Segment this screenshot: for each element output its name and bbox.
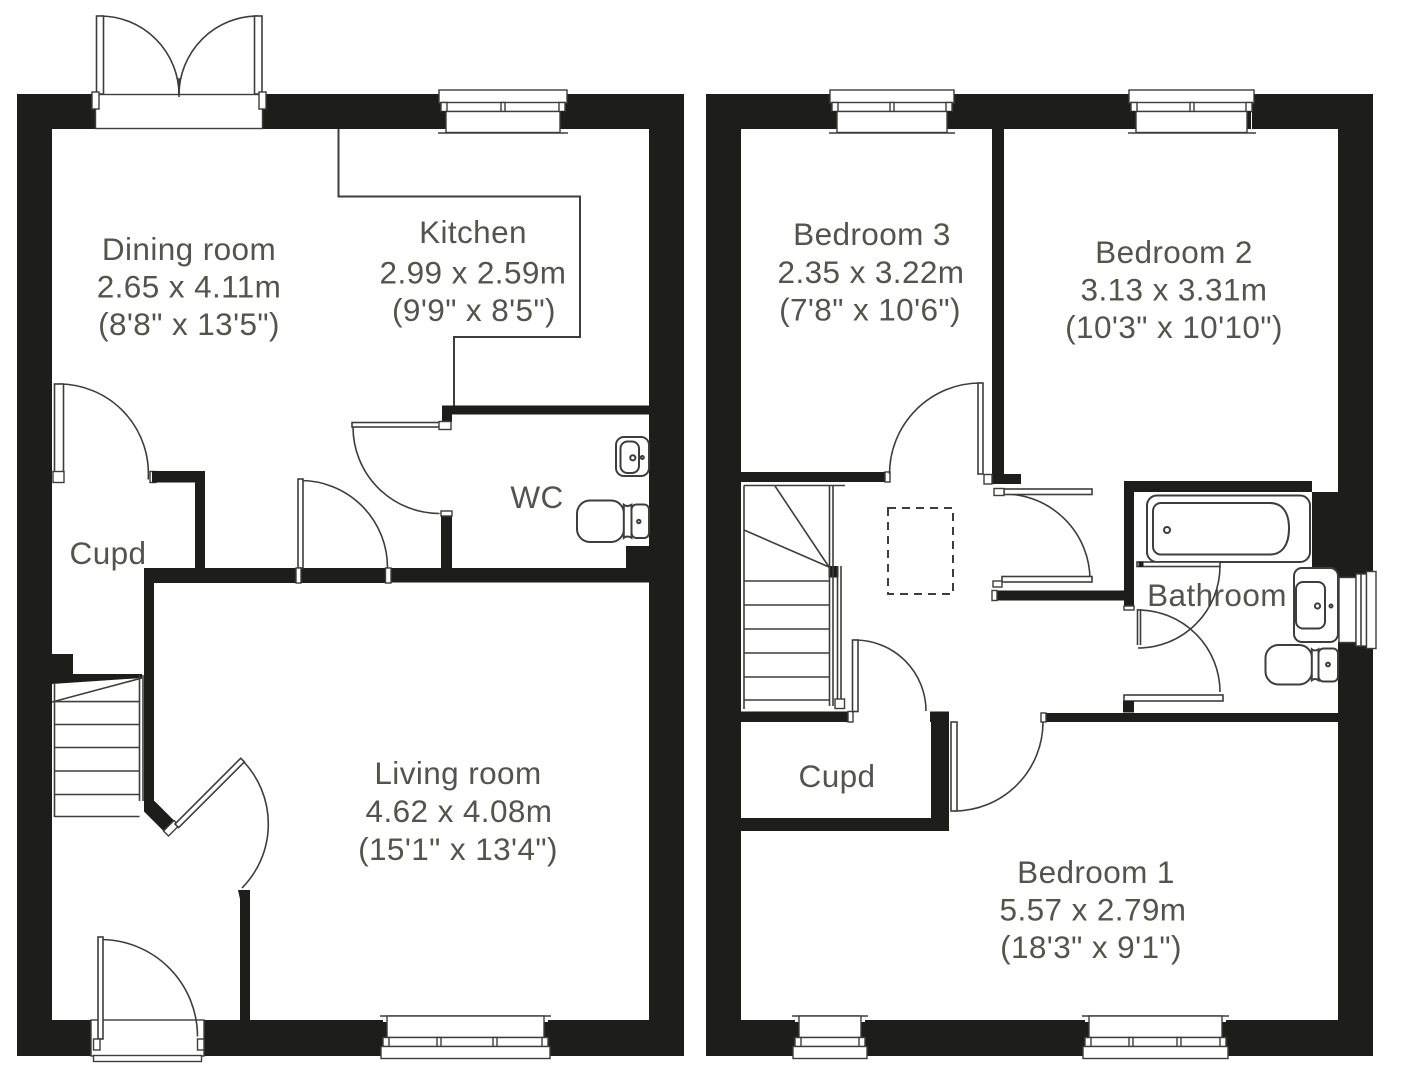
svg-text:2.99 x 2.59m: 2.99 x 2.59m: [380, 255, 567, 291]
svg-text:(7'8" x 10'6"): (7'8" x 10'6"): [779, 292, 961, 328]
svg-text:(15'1" x 13'4"): (15'1" x 13'4"): [358, 831, 558, 867]
svg-text:Cupd: Cupd: [799, 758, 876, 794]
svg-text:(8'8" x 13'5"): (8'8" x 13'5"): [98, 306, 280, 342]
svg-text:Dining room: Dining room: [102, 231, 276, 267]
svg-text:Bedroom 2: Bedroom 2: [1095, 234, 1253, 270]
svg-text:Bedroom 3: Bedroom 3: [793, 216, 951, 252]
svg-text:WC: WC: [510, 479, 563, 515]
svg-text:(18'3" x 9'1"): (18'3" x 9'1"): [1000, 929, 1182, 965]
svg-text:3.13 x 3.31m: 3.13 x 3.31m: [1081, 272, 1268, 308]
svg-text:Bedroom 1: Bedroom 1: [1017, 854, 1175, 890]
svg-text:(10'3" x 10'10"): (10'3" x 10'10"): [1065, 309, 1283, 345]
svg-text:5.57 x 2.79m: 5.57 x 2.79m: [1000, 892, 1187, 928]
svg-text:2.35 x 3.22m: 2.35 x 3.22m: [778, 254, 965, 290]
svg-text:2.65 x 4.11m: 2.65 x 4.11m: [97, 269, 282, 305]
svg-text:Bathroom: Bathroom: [1147, 577, 1287, 613]
svg-text:Kitchen: Kitchen: [419, 214, 527, 250]
svg-text:(9'9" x 8'5"): (9'9" x 8'5"): [392, 292, 556, 328]
svg-text:Cupd: Cupd: [70, 535, 147, 571]
svg-text:Living room: Living room: [374, 755, 541, 791]
svg-text:4.62 x 4.08m: 4.62 x 4.08m: [366, 793, 553, 829]
